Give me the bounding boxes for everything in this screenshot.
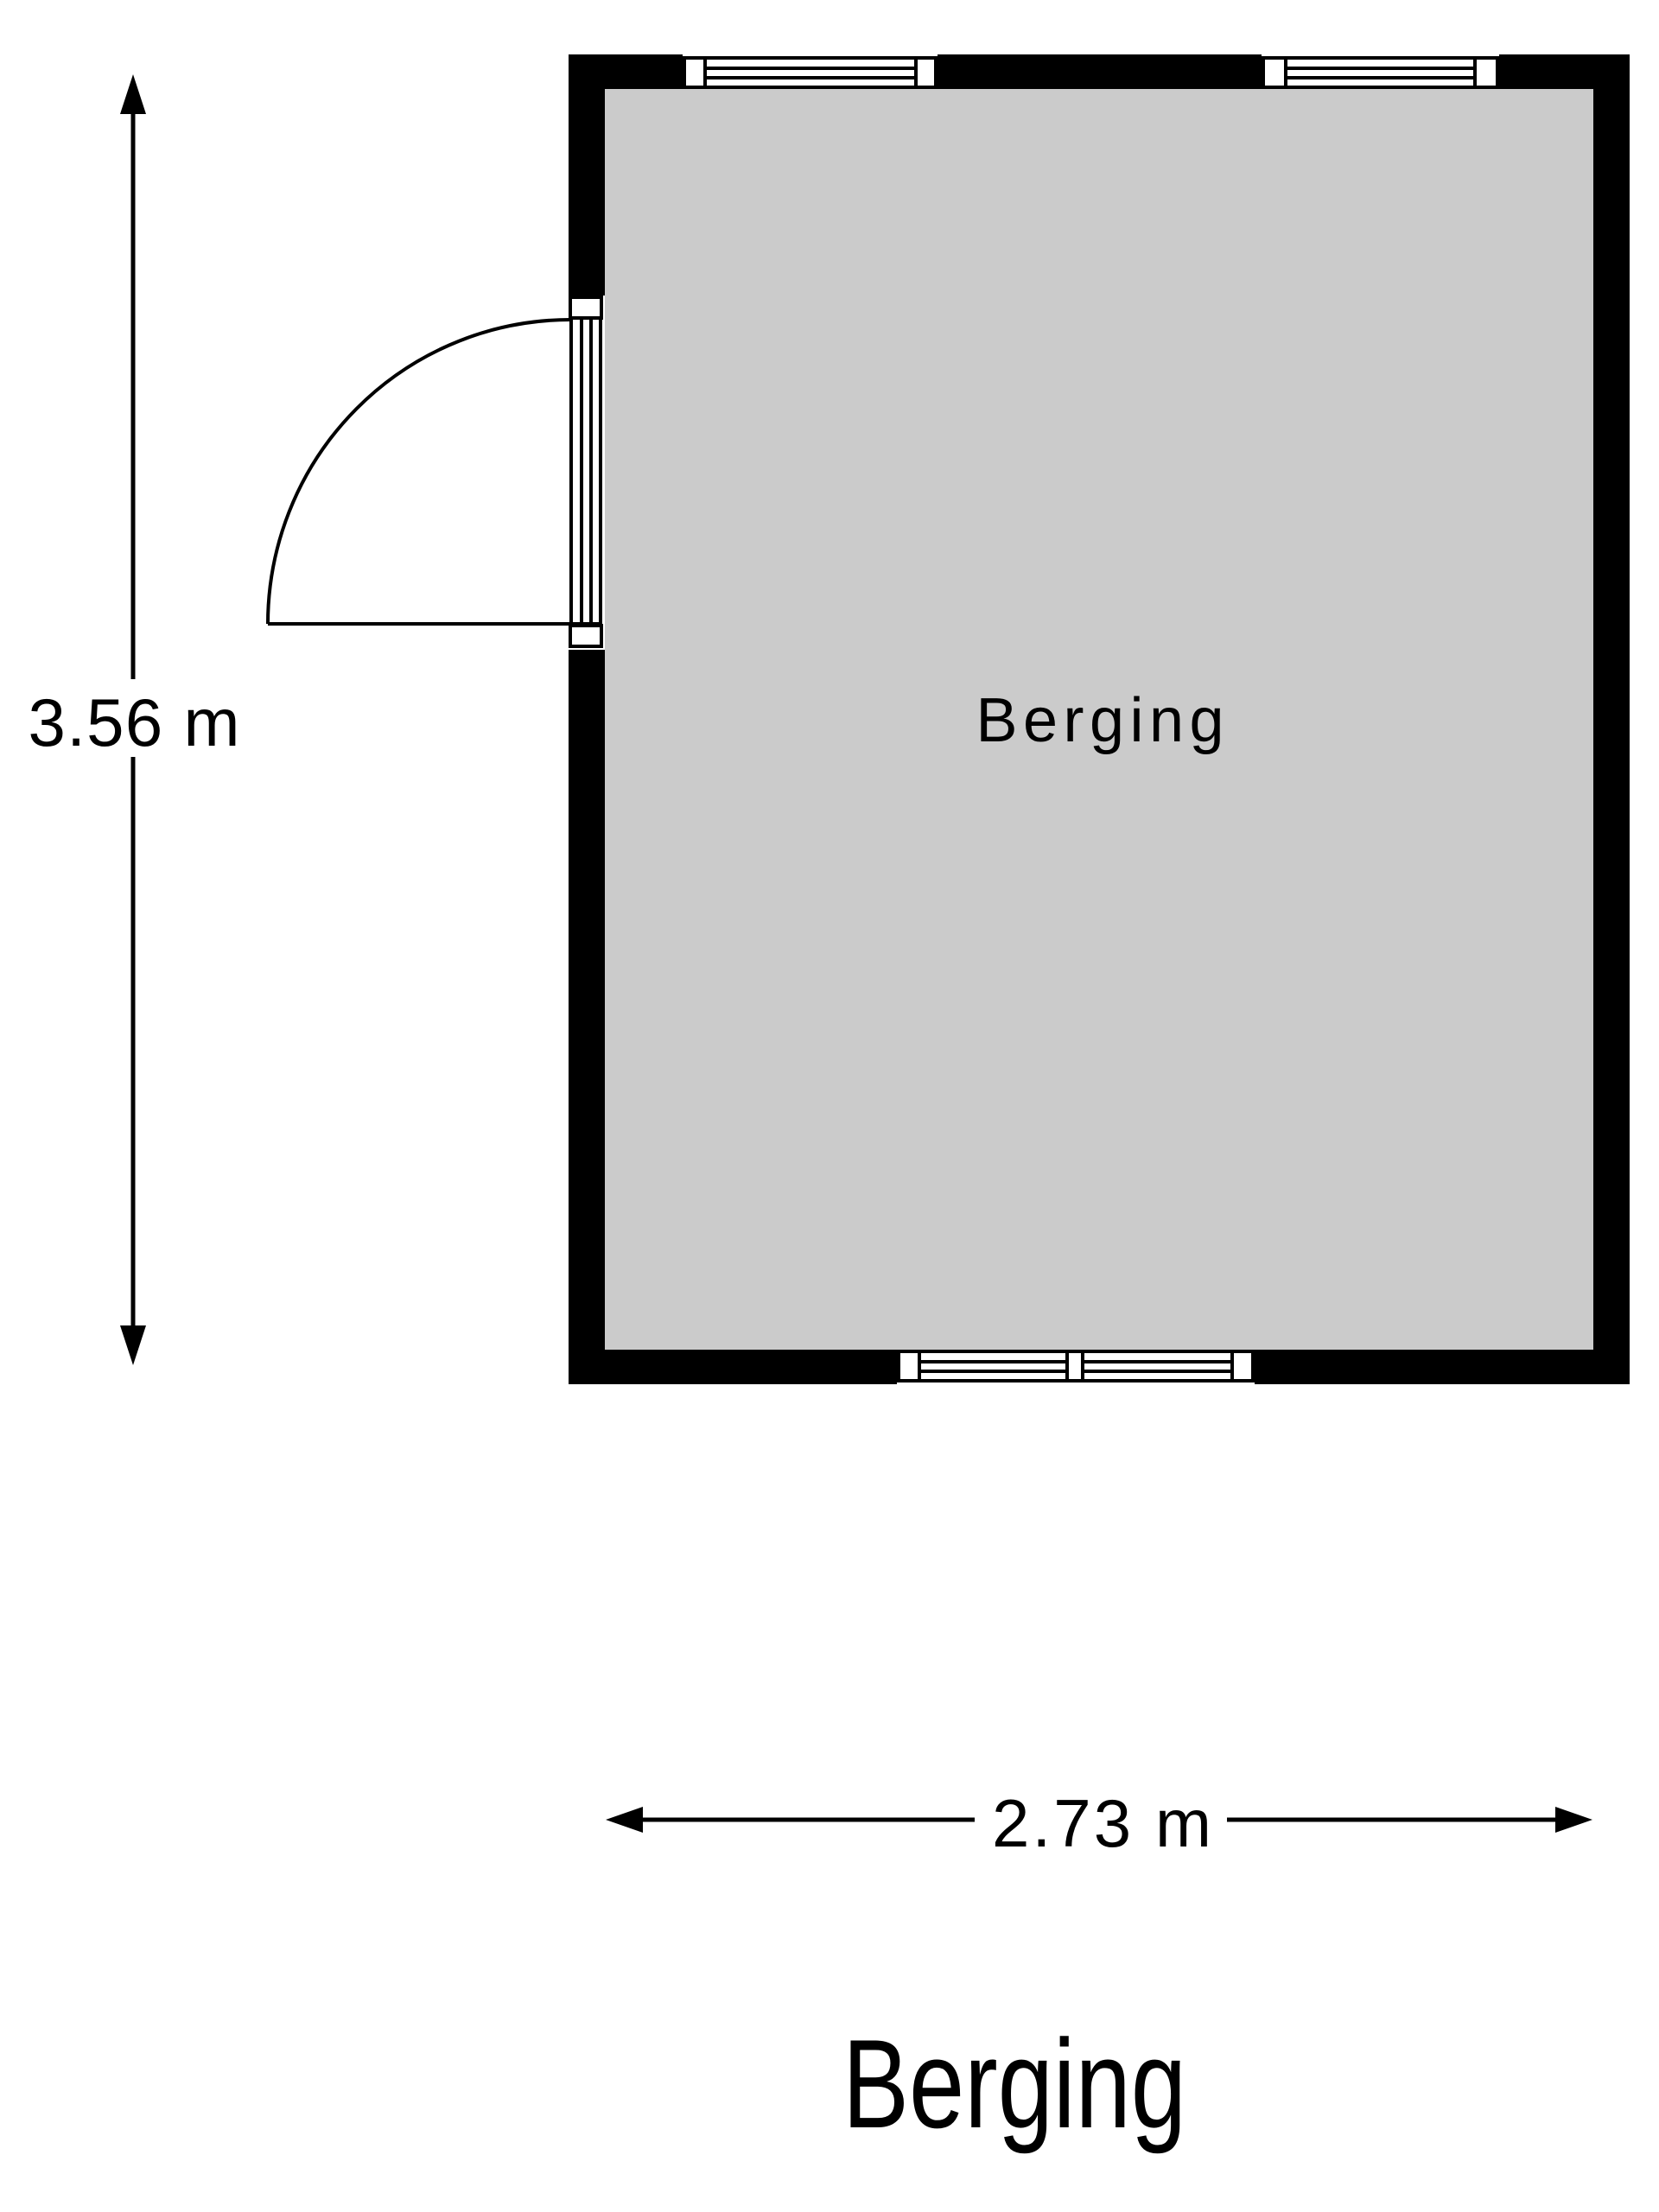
window-bottom (897, 1350, 1255, 1384)
window-frame (1263, 58, 1497, 87)
door-frame-bottom (570, 626, 601, 646)
width-dimension-label: 2.73 m (992, 1785, 1211, 1861)
plan-title: Berging (842, 2013, 1186, 2154)
door-frame-top (570, 297, 601, 318)
arrow-left-icon (606, 1807, 643, 1833)
arrow-up-icon (120, 74, 146, 114)
door-panel (571, 318, 601, 624)
height-dimension: 3.56 m (29, 74, 240, 1365)
window-frame (899, 1351, 1253, 1381)
arrow-down-icon (120, 1325, 146, 1365)
floorplan-page: 3.56 m 2.73 m Berging Berging (0, 0, 1659, 2212)
arrow-right-icon (1555, 1807, 1592, 1833)
window-frame (684, 58, 936, 87)
width-dimension: 2.73 m (606, 1785, 1592, 1861)
door (268, 296, 605, 650)
window-top-left (683, 54, 938, 89)
floorplan-drawing: 3.56 m 2.73 m Berging Berging (0, 0, 1659, 2212)
height-dimension-label: 3.56 m (29, 684, 240, 760)
door-swing-arc (268, 320, 570, 624)
window-top-right (1262, 54, 1499, 89)
